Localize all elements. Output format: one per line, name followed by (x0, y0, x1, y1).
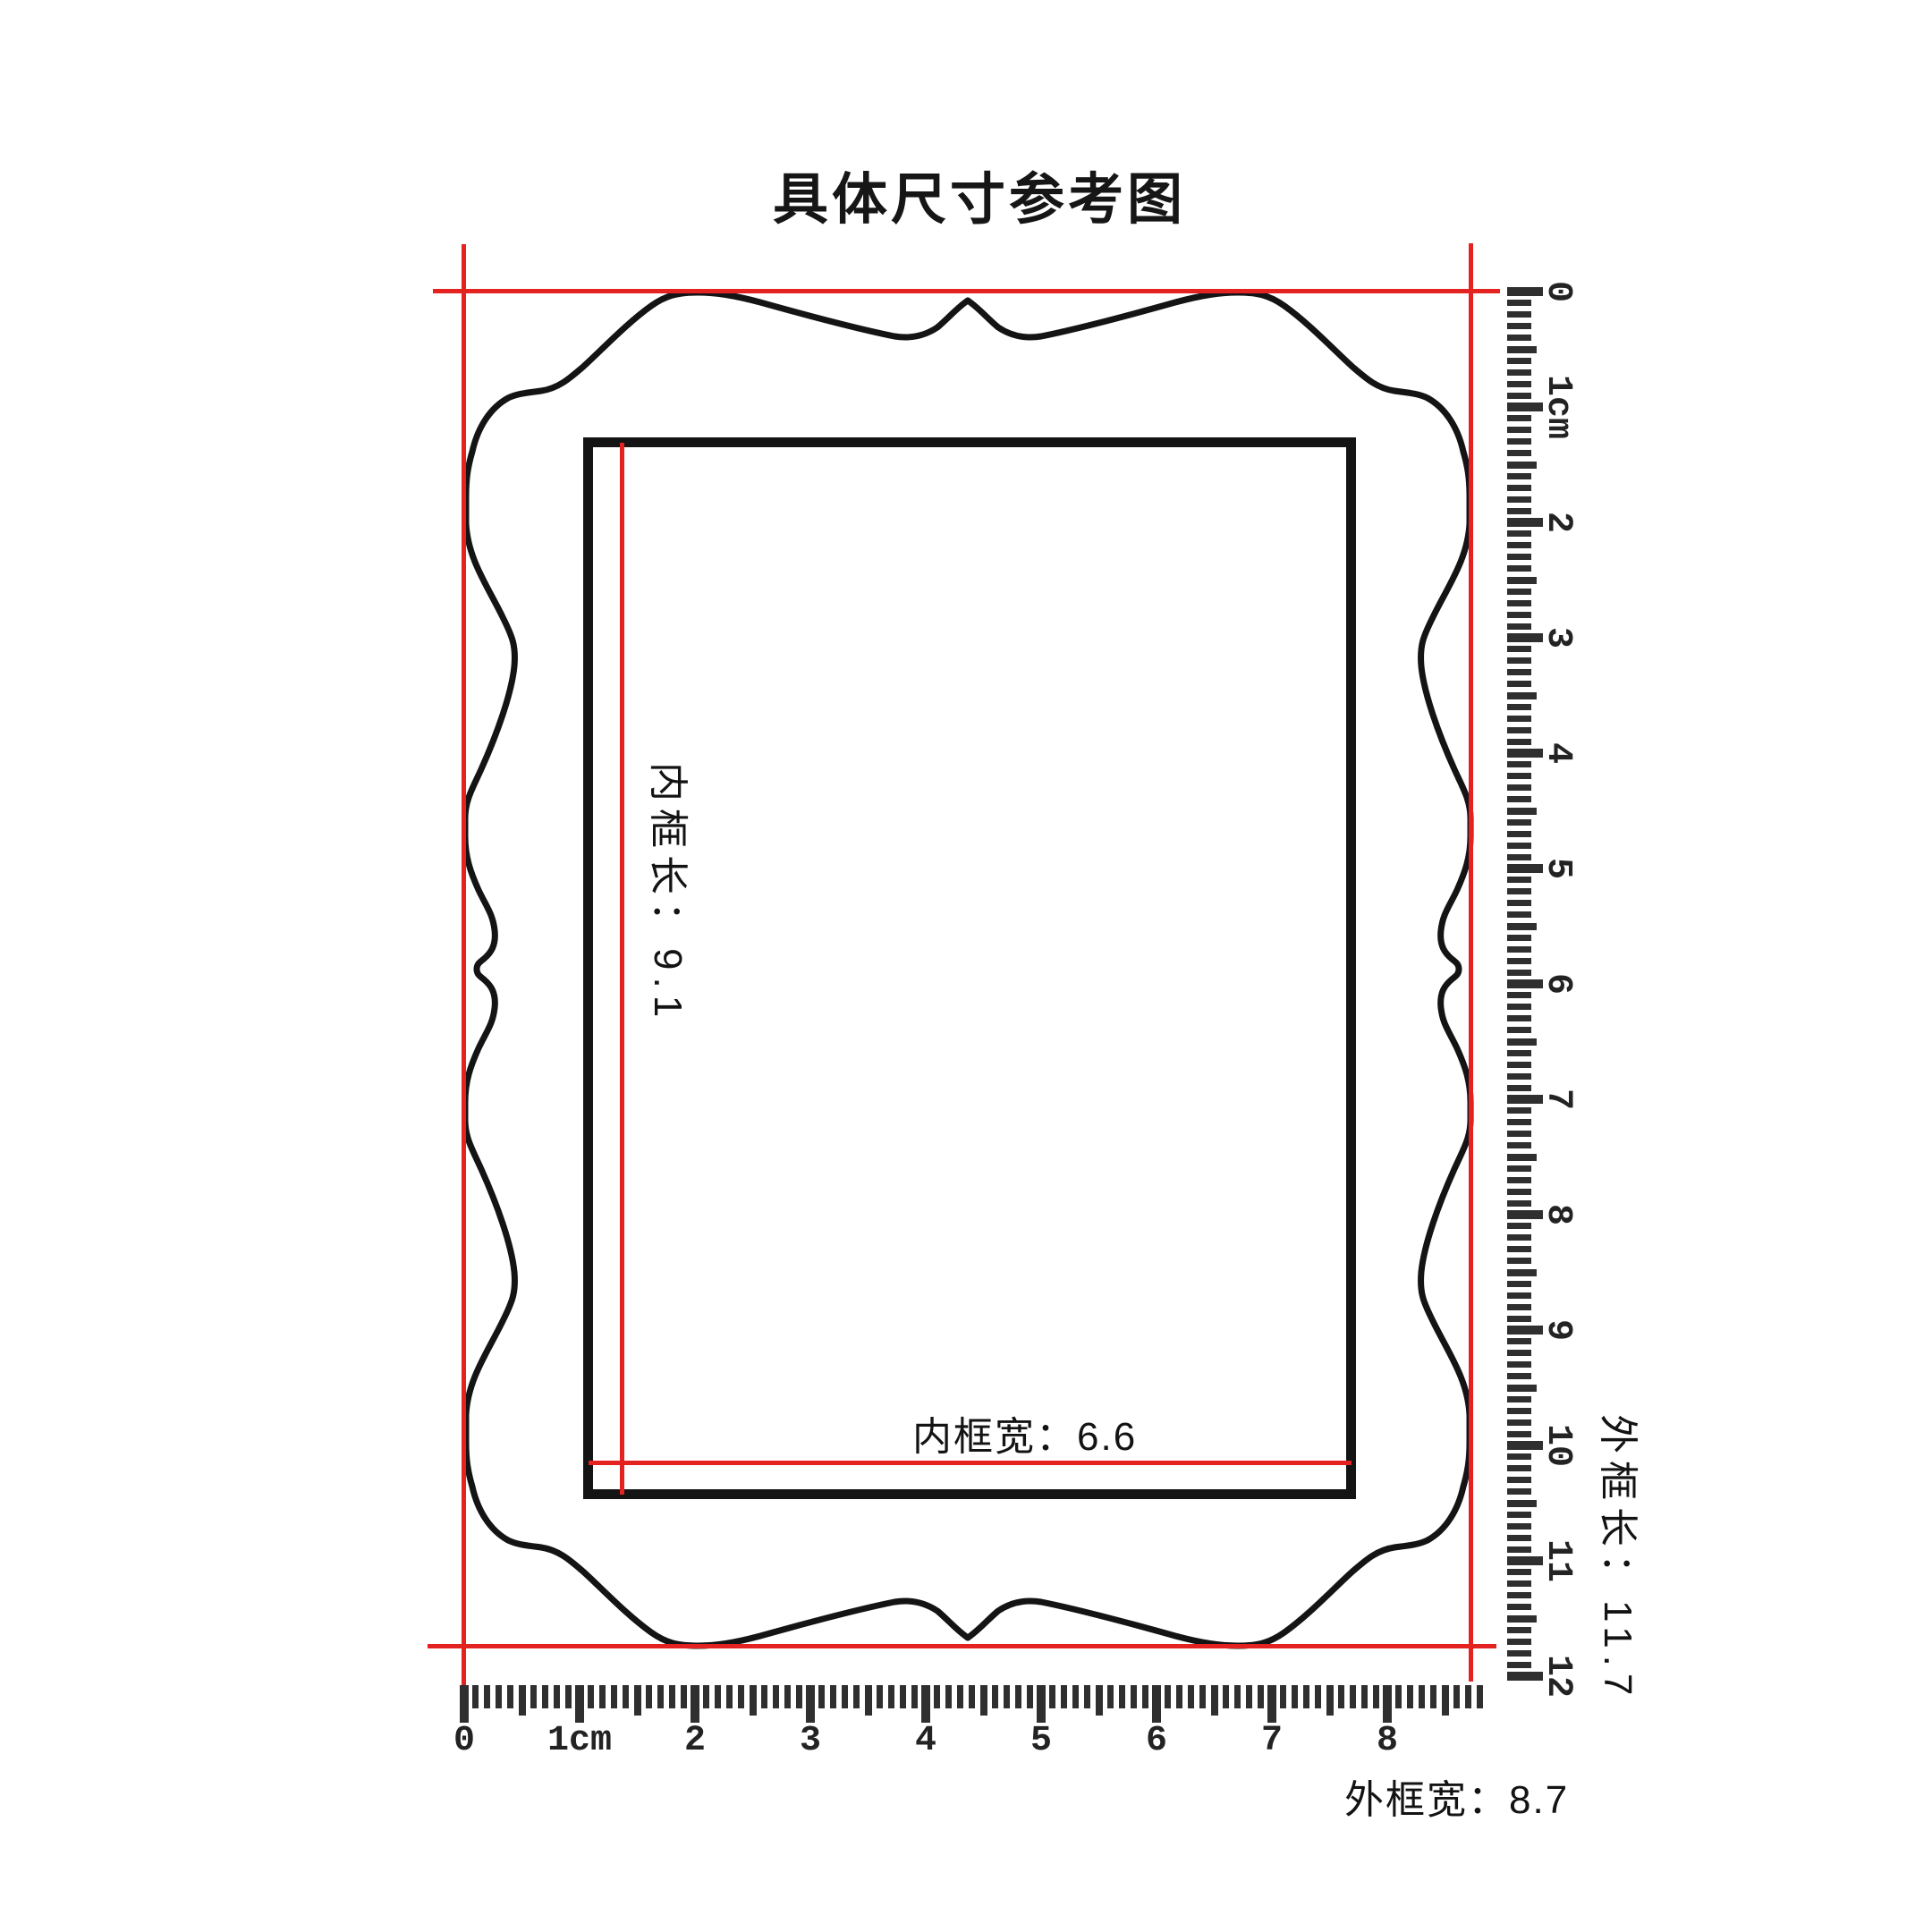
ruler-tick (1199, 1685, 1206, 1708)
ruler-tick (1507, 1523, 1531, 1529)
ruler-tick (750, 1685, 757, 1716)
ruler-tick (1507, 450, 1531, 456)
ruler-tick (1507, 369, 1531, 376)
ruler-tick (1507, 589, 1531, 595)
ruler-tick (1507, 1258, 1531, 1264)
ruler-tick (1326, 1685, 1334, 1716)
ruler-tick (888, 1685, 894, 1708)
ruler-tick (565, 1685, 572, 1708)
ruler-tick (554, 1685, 560, 1708)
ruler-tick (980, 1685, 987, 1716)
ruler-tick (1507, 1373, 1531, 1379)
ruler-tick (1350, 1685, 1356, 1708)
ruler-tick (1507, 311, 1531, 318)
ruler-tick (1507, 1546, 1531, 1553)
inner-length-label: 内框长：9.1 (647, 762, 688, 1024)
ruler-tick (1037, 1685, 1046, 1723)
ruler-tick (484, 1685, 490, 1708)
ruler-label: 3 (1538, 627, 1576, 648)
ruler-tick (1507, 1580, 1531, 1587)
ruler-label: 6 (1538, 973, 1576, 995)
ruler-tick (1477, 1685, 1483, 1708)
inner-width-label: 内框宽：6.6 (912, 1404, 1137, 1462)
ruler-tick (1507, 1338, 1531, 1344)
ruler-tick (1507, 1465, 1531, 1471)
ruler-tick (1507, 393, 1531, 399)
ruler-tick (1430, 1685, 1436, 1708)
ruler-tick (1507, 1200, 1531, 1207)
ruler-tick (1246, 1685, 1252, 1708)
ruler-tick (1507, 1304, 1531, 1310)
ruler-tick (992, 1685, 998, 1708)
ruler-label: 5 (1538, 858, 1576, 879)
ruler-tick (1507, 1107, 1531, 1114)
ruler-tick (1507, 727, 1531, 733)
ruler-tick (681, 1685, 687, 1708)
ruler-tick (599, 1685, 606, 1708)
ruler-tick (865, 1685, 872, 1716)
ruler-tick (1507, 808, 1537, 815)
ruler-tick (1280, 1685, 1286, 1708)
ruler-tick (1373, 1685, 1379, 1708)
ruler-tick (1507, 1154, 1537, 1161)
ruler-tick (1407, 1685, 1413, 1708)
ruler-tick (1507, 462, 1537, 469)
ruler-tick (1507, 739, 1531, 745)
crop-mark-left-line (462, 244, 466, 1685)
ruler-tick (1507, 692, 1537, 699)
ruler-tick (1507, 784, 1531, 791)
ruler-tick (1119, 1685, 1125, 1708)
ruler-tick (1507, 1488, 1531, 1495)
ruler-tick (1507, 1073, 1531, 1080)
ruler-tick (530, 1685, 537, 1708)
ruler-tick (1507, 1038, 1537, 1046)
ruler-tick (1507, 1453, 1531, 1460)
ruler-tick (1507, 485, 1531, 491)
ruler-tick (1507, 1419, 1531, 1426)
ruler-label: 10 (1538, 1424, 1576, 1467)
ruler-tick (1507, 843, 1531, 849)
ruler-label: 0 (453, 1721, 475, 1761)
ruler-tick (1258, 1685, 1264, 1708)
outer-length-label: 外框长：11.7 (1597, 1414, 1638, 1702)
ruler-tick (1507, 1292, 1531, 1299)
ruler-tick (1507, 854, 1531, 860)
dimension-reference-diagram: 具体尺寸参考图 内框长：9.1 内框宽：6.6 外框长：11.7 外框宽：8.7… (0, 0, 1932, 1932)
ruler-tick (830, 1685, 836, 1708)
ruler-tick (1453, 1685, 1460, 1708)
ruler-tick (1507, 300, 1531, 306)
ruler-tick (1507, 831, 1531, 837)
ruler-tick (1507, 657, 1531, 664)
ruler-tick (1507, 577, 1537, 584)
ruler-tick (1507, 1650, 1531, 1657)
ruler-tick (1084, 1685, 1090, 1708)
ruler-tick (1507, 1050, 1531, 1056)
ruler-label: 6 (1146, 1721, 1167, 1761)
crop-mark-bottom-line (428, 1644, 1496, 1648)
ruler-tick (472, 1685, 479, 1708)
ruler-tick (761, 1685, 767, 1708)
ruler-label: 9 (1538, 1319, 1576, 1341)
ruler-tick (921, 1685, 930, 1723)
ruler-tick (460, 1685, 469, 1723)
ruler-tick (1507, 681, 1531, 687)
ruler-label: 0 (1538, 281, 1576, 302)
ruler-label: 1cm (547, 1721, 612, 1761)
ruler-tick (1507, 1361, 1531, 1368)
ruler-tick (1507, 530, 1531, 537)
ruler-tick (1507, 381, 1531, 387)
ruler-tick (945, 1685, 952, 1708)
ruler-tick (1152, 1685, 1161, 1723)
ruler-tick (1507, 1027, 1531, 1033)
ruler-tick (853, 1685, 860, 1708)
ruler-tick (1507, 1004, 1531, 1010)
ruler-tick (1465, 1685, 1471, 1708)
ruler-tick (1507, 877, 1531, 883)
ruler-label: 4 (915, 1721, 936, 1761)
ruler-tick (1507, 1500, 1537, 1507)
ruler-tick (818, 1685, 825, 1708)
inner-length-measure-line (620, 443, 624, 1495)
ruler-tick (1507, 669, 1531, 675)
ruler-tick (1507, 819, 1531, 826)
ruler-tick (1507, 958, 1531, 964)
ruler-tick (1507, 1177, 1531, 1183)
ruler-tick (1507, 761, 1531, 767)
ruler-label: 2 (1538, 512, 1576, 533)
ruler-tick (1507, 1269, 1537, 1276)
ruler-tick (715, 1685, 721, 1708)
ruler-tick (1507, 1639, 1531, 1645)
ruler-tick (1211, 1685, 1218, 1716)
ruler-tick (1015, 1685, 1021, 1708)
ruler-tick (1507, 1316, 1531, 1322)
ruler-label: 2 (684, 1721, 706, 1761)
ruler-tick (877, 1685, 883, 1708)
ruler-tick (1507, 346, 1537, 353)
ruler-tick (1383, 1685, 1392, 1723)
ruler-label: 7 (1538, 1089, 1576, 1110)
ruler-tick (703, 1685, 709, 1708)
ruler-label: 1cm (1538, 375, 1576, 439)
ruler-tick (1507, 1234, 1531, 1241)
ruler-tick (646, 1685, 652, 1708)
ruler-tick (1507, 1396, 1531, 1402)
ruler-tick (1165, 1685, 1171, 1708)
ruler-tick (1507, 415, 1531, 421)
ruler-tick (1107, 1685, 1114, 1708)
ruler-label: 5 (1030, 1721, 1052, 1761)
ruler-tick (1507, 1535, 1531, 1541)
ruler-tick (726, 1685, 733, 1708)
ruler-tick (1131, 1685, 1137, 1708)
ruler-tick (842, 1685, 848, 1708)
ruler-label: 12 (1538, 1655, 1576, 1698)
ruler-tick (1507, 923, 1537, 930)
ruler-tick (1507, 1604, 1531, 1610)
ruler-tick (1507, 888, 1531, 894)
ruler-tick (1507, 796, 1531, 802)
ruler-tick (1507, 1592, 1531, 1598)
ruler-label: 3 (800, 1721, 821, 1761)
ruler-tick (1507, 1350, 1531, 1356)
ruler-tick (1419, 1685, 1425, 1708)
ruler-tick (1507, 358, 1531, 364)
outer-width-label: 外框宽：8.7 (1344, 1767, 1569, 1825)
ruler-label: 8 (1377, 1721, 1398, 1761)
ruler-tick (1395, 1685, 1402, 1708)
ruler-tick (1507, 1627, 1531, 1633)
ruler-tick (957, 1685, 963, 1708)
ruler-tick (1507, 935, 1531, 941)
ruler-tick (1507, 427, 1531, 433)
ruler-tick (1507, 1385, 1537, 1392)
ruler-tick (1507, 1615, 1537, 1623)
ruler-tick (1142, 1685, 1148, 1708)
crop-mark-right-line (1469, 243, 1473, 1682)
ruler-tick (1507, 646, 1531, 652)
ruler-tick (1507, 1189, 1531, 1195)
ruler-tick (1507, 335, 1531, 341)
ruler-tick (657, 1685, 664, 1708)
ruler-tick (1507, 911, 1531, 918)
ruler-tick (1267, 1685, 1276, 1723)
ruler-tick (1507, 1085, 1531, 1091)
ruler-tick (1507, 1408, 1531, 1414)
ruler-tick (1507, 1569, 1531, 1575)
ruler-tick (1507, 716, 1531, 722)
ruler-label: 4 (1538, 742, 1576, 764)
ruler-label: 7 (1261, 1721, 1283, 1761)
ruler-tick (796, 1685, 802, 1708)
ruler-tick (1507, 992, 1531, 998)
ruler-label: 8 (1538, 1204, 1576, 1225)
ruler-tick (1188, 1685, 1194, 1708)
ruler-tick (542, 1685, 548, 1708)
ruler-tick (1361, 1685, 1368, 1708)
ruler-tick (900, 1685, 906, 1708)
ruler-tick (1061, 1685, 1067, 1708)
ruler-tick (1303, 1685, 1309, 1708)
ruler-tick (1507, 1165, 1531, 1172)
ruler-label: 11 (1538, 1539, 1576, 1582)
ruler-tick (1507, 473, 1531, 479)
ruler-tick (1507, 1131, 1531, 1137)
ruler-tick (1507, 1015, 1531, 1021)
ruler-tick (1292, 1685, 1298, 1708)
ruler-tick (1507, 970, 1531, 976)
ruler-tick (934, 1685, 940, 1708)
ruler-tick (1507, 542, 1531, 548)
ruler-tick (669, 1685, 675, 1708)
ruler-tick (806, 1685, 815, 1723)
ruler-tick (1338, 1685, 1344, 1708)
ruler-tick (691, 1685, 699, 1723)
ruler-tick (1004, 1685, 1010, 1708)
ruler-tick (623, 1685, 629, 1708)
ruler-tick (911, 1685, 918, 1708)
ruler-tick (1507, 704, 1531, 710)
crop-mark-top-line (433, 289, 1500, 293)
ruler-tick (1507, 1246, 1531, 1252)
ruler-tick (507, 1685, 513, 1708)
ruler-tick (784, 1685, 791, 1708)
ruler-tick (1027, 1685, 1033, 1708)
ruler-tick (1507, 1281, 1531, 1287)
ruler-tick (1507, 565, 1531, 572)
ruler-tick (1507, 1477, 1531, 1483)
ruler-tick (1507, 773, 1531, 779)
ruler-tick (1507, 1223, 1531, 1229)
ruler-tick (1507, 1431, 1531, 1437)
ruler-tick (1223, 1685, 1229, 1708)
ruler-tick (634, 1685, 641, 1716)
ruler-tick (496, 1685, 502, 1708)
ruler-tick (1507, 1142, 1531, 1148)
ruler-tick (1507, 612, 1531, 618)
ruler-tick (1234, 1685, 1241, 1708)
ruler-tick (1507, 554, 1531, 560)
inner-frame-rect (583, 437, 1356, 1499)
ruler-tick (1442, 1685, 1449, 1716)
ruler-tick (1096, 1685, 1103, 1716)
ruler-tick (1507, 1512, 1531, 1518)
ruler-tick (1049, 1685, 1055, 1708)
ruler-tick (519, 1685, 526, 1716)
ruler-tick (969, 1685, 975, 1708)
ruler-tick (1507, 1119, 1531, 1125)
ruler-tick (1507, 508, 1531, 514)
ruler-tick (1176, 1685, 1182, 1708)
ruler-tick (1507, 438, 1531, 445)
ruler-tick (611, 1685, 617, 1708)
ruler-tick (1072, 1685, 1079, 1708)
ruler-tick (1507, 323, 1531, 329)
ruler-tick (773, 1685, 779, 1708)
ruler-tick (738, 1685, 744, 1708)
ruler-tick (1507, 900, 1531, 906)
ruler-tick (1507, 623, 1531, 630)
ruler-tick (1507, 600, 1531, 606)
ruler-tick (1315, 1685, 1321, 1708)
ruler-tick (1507, 946, 1531, 953)
ruler-tick (1507, 1062, 1531, 1068)
ruler-tick (588, 1685, 594, 1708)
ruler-tick (1507, 1662, 1531, 1668)
ruler-tick (575, 1685, 584, 1723)
ruler-tick (1507, 496, 1531, 503)
